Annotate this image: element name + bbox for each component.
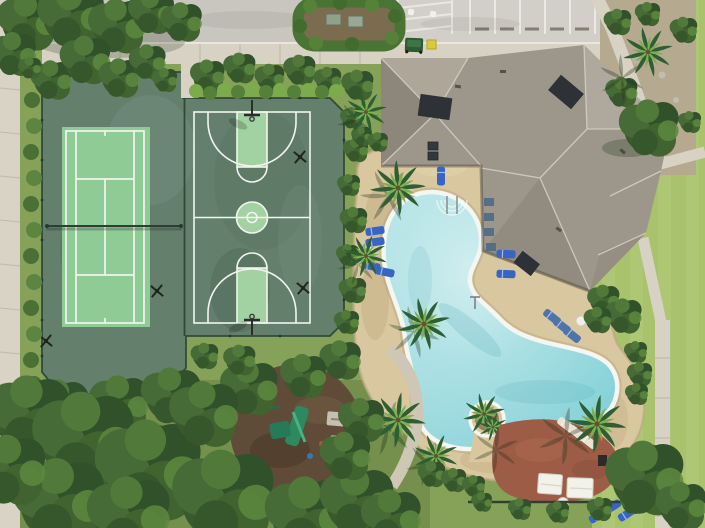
net-post bbox=[45, 224, 49, 228]
net-post bbox=[179, 224, 183, 228]
grill bbox=[598, 455, 607, 466]
cabana bbox=[567, 478, 594, 499]
blue-lounger bbox=[437, 167, 445, 186]
yellow-cart bbox=[427, 40, 436, 49]
tree bbox=[0, 435, 45, 505]
aerial-photo: Top-down aerial view of a community recr… bbox=[0, 0, 705, 528]
utility-box bbox=[348, 16, 363, 27]
blue-lounger bbox=[496, 250, 515, 259]
utility-box bbox=[326, 14, 341, 25]
green-utility-cart bbox=[405, 38, 424, 54]
spring-rider bbox=[307, 453, 313, 459]
key-top bbox=[237, 112, 267, 167]
cabana bbox=[537, 473, 562, 495]
hedge-island bbox=[293, 0, 402, 51]
blue-lounger bbox=[496, 270, 515, 279]
